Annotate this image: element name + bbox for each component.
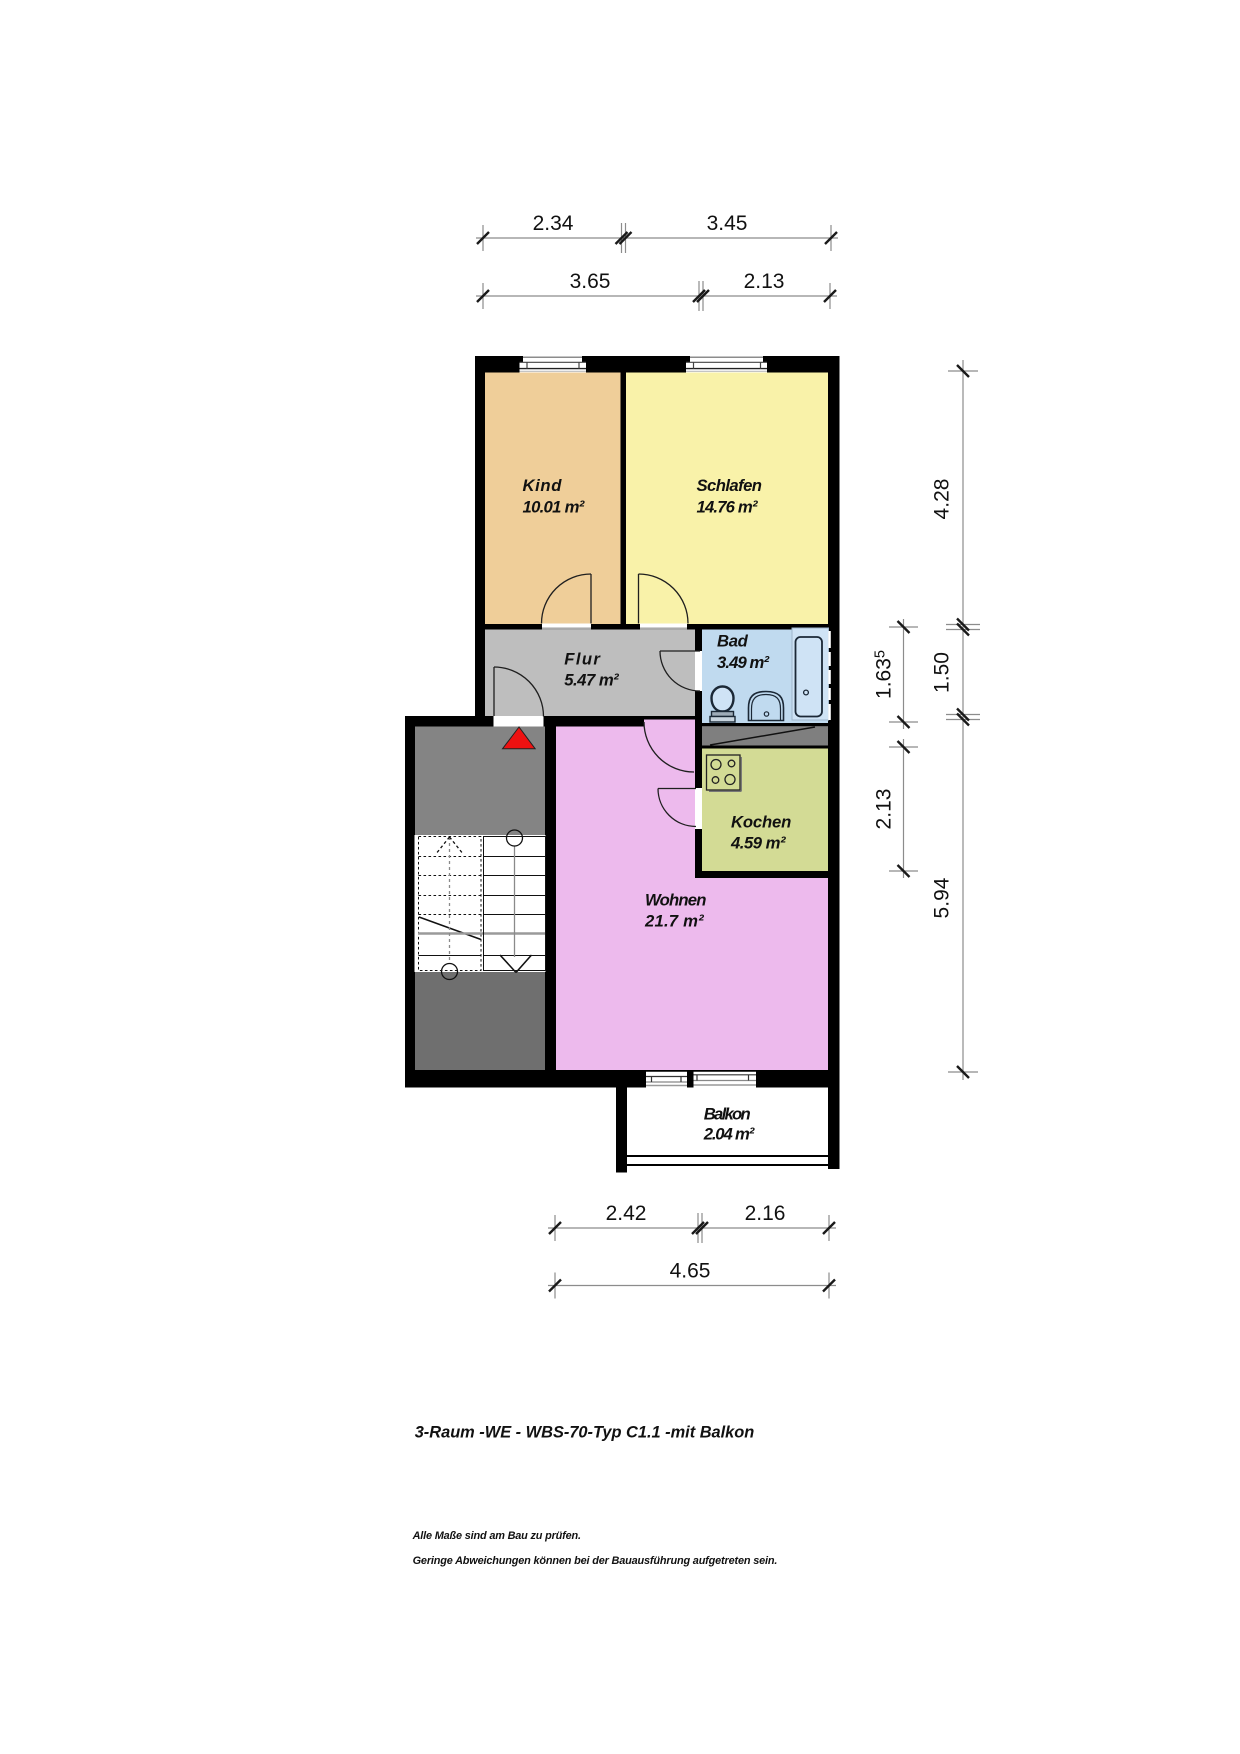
- svg-text:5.47 m²: 5.47 m²: [564, 670, 619, 689]
- svg-text:4.65: 4.65: [670, 1260, 711, 1283]
- svg-text:Balkon: Balkon: [704, 1104, 751, 1123]
- svg-text:2.16: 2.16: [745, 1202, 786, 1225]
- svg-text:Kind: Kind: [523, 476, 563, 495]
- svg-text:Alle Maße sind am Bau zu prüfe: Alle Maße sind am Bau zu prüfen.: [412, 1530, 581, 1542]
- svg-text:14.76 m²: 14.76 m²: [697, 498, 758, 517]
- svg-text:3.49 m²: 3.49 m²: [717, 653, 769, 672]
- svg-text:Wohnen: Wohnen: [645, 891, 706, 910]
- svg-text:3.65: 3.65: [570, 270, 611, 293]
- svg-text:Bad: Bad: [717, 632, 749, 651]
- svg-text:3-Raum -WE - WBS-70-Typ C1.1 -: 3-Raum -WE - WBS-70-Typ C1.1 -mit Balkon: [415, 1423, 755, 1441]
- svg-text:5.94: 5.94: [931, 877, 954, 918]
- svg-text:4.28: 4.28: [931, 479, 954, 520]
- svg-text:2.13: 2.13: [873, 789, 896, 830]
- svg-text:2.42: 2.42: [606, 1202, 647, 1225]
- svg-text:4.59 m²: 4.59 m²: [730, 833, 786, 852]
- svg-text:Schlafen: Schlafen: [697, 476, 763, 495]
- svg-text:10.01 m²: 10.01 m²: [523, 498, 585, 517]
- svg-text:Flur: Flur: [564, 650, 601, 669]
- svg-text:2.13: 2.13: [744, 270, 785, 293]
- svg-text:Geringe Abweichungen können be: Geringe Abweichungen können bei der Baua…: [413, 1555, 778, 1567]
- svg-text:2.04 m²: 2.04 m²: [703, 1125, 755, 1144]
- svg-text:2.34: 2.34: [533, 212, 574, 235]
- svg-text:1.50: 1.50: [931, 652, 954, 693]
- svg-text:3.45: 3.45: [707, 212, 748, 235]
- svg-text:Kochen: Kochen: [731, 813, 791, 832]
- svg-text:21.7 m²: 21.7 m²: [644, 911, 704, 930]
